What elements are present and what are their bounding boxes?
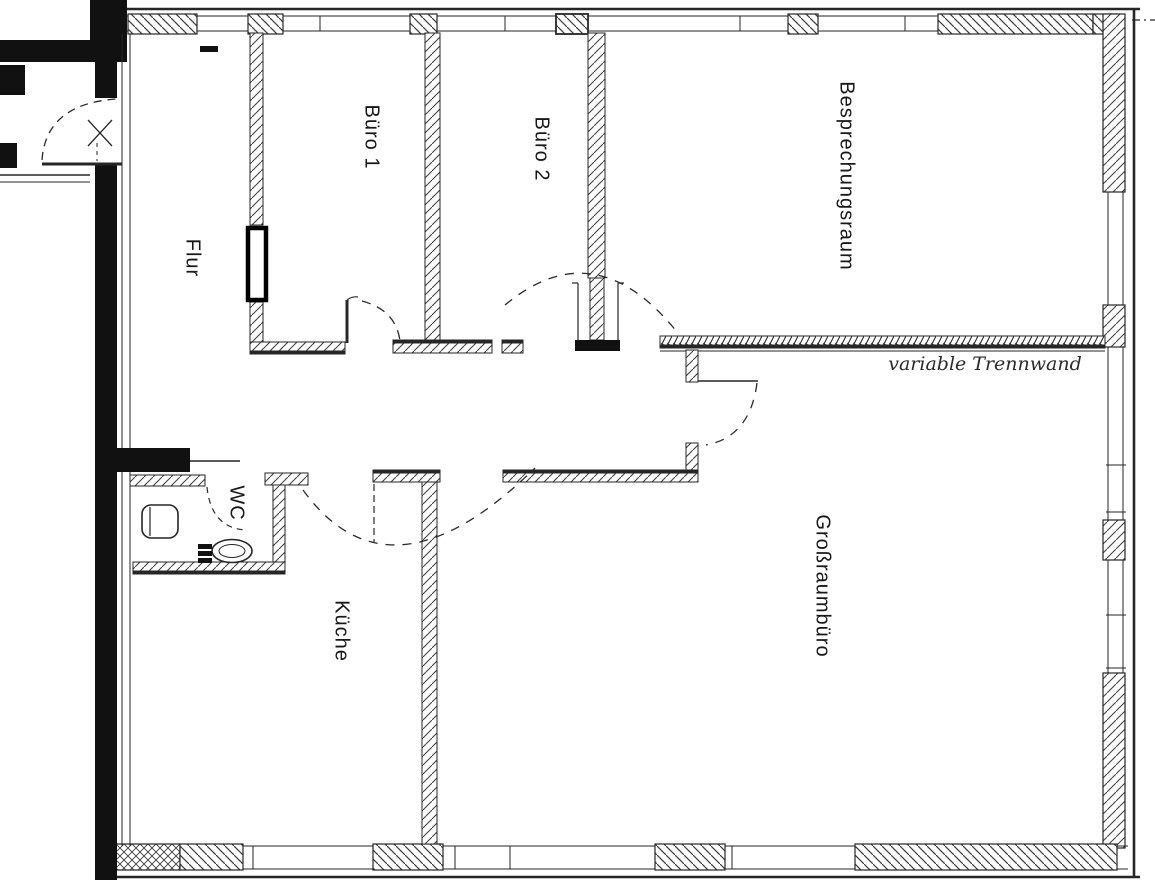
floor-plan-drawing xyxy=(0,0,1155,885)
toilet xyxy=(142,505,178,538)
interior-walls xyxy=(113,33,1105,844)
floor-plan-page: FlurBüro 1Büro 2BesprechungsraumWCKücheG… xyxy=(0,0,1155,885)
wc-fixtures xyxy=(142,505,252,563)
entrance-door xyxy=(42,99,122,164)
door-swing-arcs xyxy=(207,273,757,545)
wall-opening-marker xyxy=(248,228,266,300)
exterior-walls xyxy=(0,0,1155,880)
